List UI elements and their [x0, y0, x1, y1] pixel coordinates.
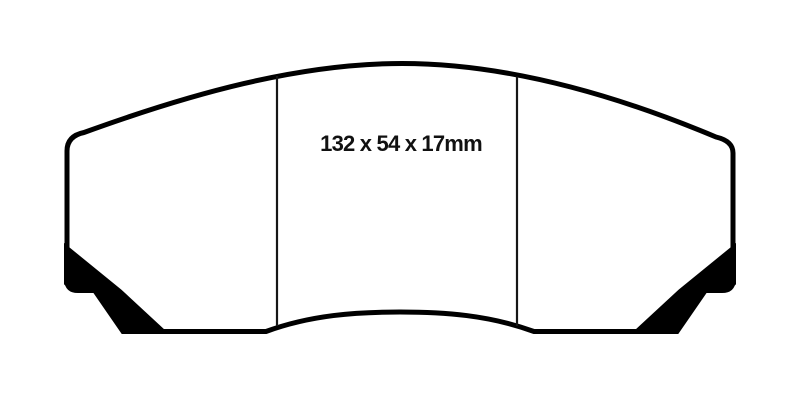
dimensions-label: 132 x 54 x 17mm: [320, 131, 482, 156]
brake-pad-diagram: 132 x 54 x 17mm: [0, 0, 800, 401]
brake-pad-drawing: 132 x 54 x 17mm: [0, 0, 800, 401]
pad-outline-shape: [67, 64, 733, 332]
